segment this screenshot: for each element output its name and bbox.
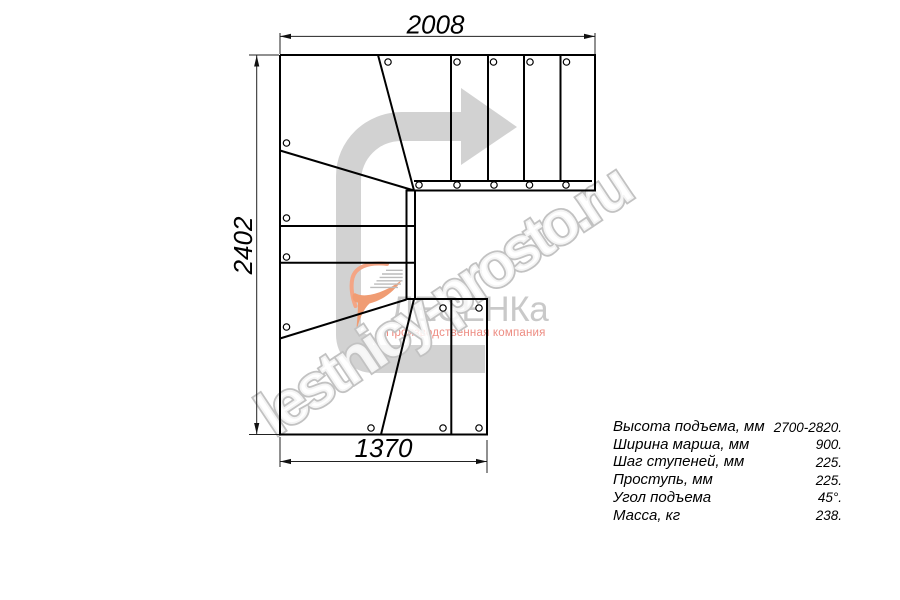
svg-text:1370: 1370 xyxy=(355,433,413,463)
svg-text:2402: 2402 xyxy=(228,216,258,275)
svg-text:2008: 2008 xyxy=(406,10,465,40)
svg-text:lestnicy-prosto.ru: lestnicy-prosto.ru xyxy=(244,152,642,449)
